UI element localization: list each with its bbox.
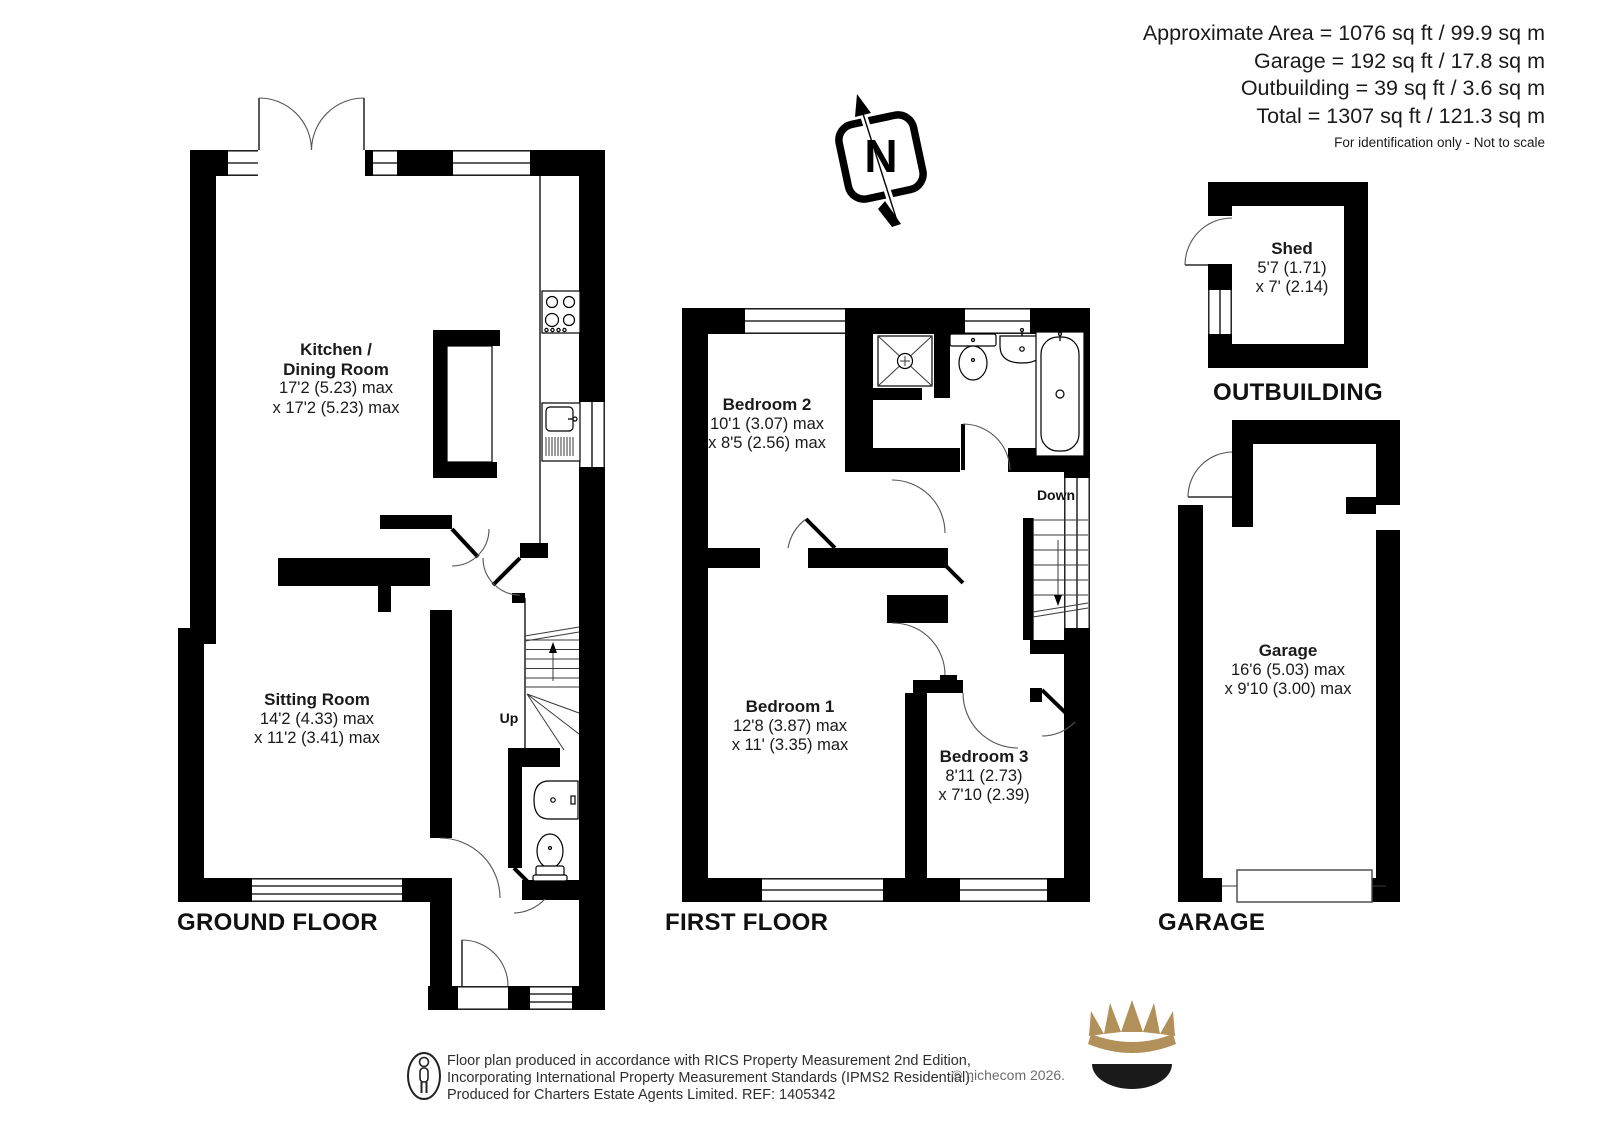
wc-toilet-icon: [533, 834, 567, 881]
bedroom1-label: Bedroom 1 12'8 (3.87) max x 11' (3.35) m…: [732, 697, 849, 756]
approximate-area: Approximate Area = 1076 sq ft / 99.9 sq …: [1143, 20, 1545, 48]
stairs-down-label: Down: [1037, 487, 1075, 503]
compass-north-label: N: [864, 129, 897, 183]
stairs-up-label: Up: [500, 710, 519, 726]
kitchen-window-top-right: [453, 150, 530, 176]
garage-door: [1222, 870, 1386, 902]
ground-floor-title: GROUND FLOOR: [177, 909, 378, 937]
bedroom2-window: [745, 308, 845, 334]
bedroom2-door: [788, 519, 835, 548]
copyright-notice: © nichecom 2026.: [952, 1067, 1065, 1083]
hob-icon: [542, 291, 580, 333]
shed-door: [1185, 218, 1232, 265]
bedroom2-label: Bedroom 2 10'1 (3.07) max x 8'5 (2.56) m…: [708, 395, 826, 454]
footer-disclaimer: Floor plan produced in accordance with R…: [447, 1053, 974, 1104]
kitchen-window-top-left: [228, 150, 258, 176]
front-door: [458, 940, 508, 1010]
bedroom3-door: [963, 693, 1018, 748]
french-doors: [258, 98, 365, 176]
total-area: Total = 1307 sq ft / 121.3 sq m: [1143, 103, 1545, 131]
bathtub-icon: [1036, 332, 1084, 456]
footer-line3: Produced for Charters Estate Agents Limi…: [447, 1087, 974, 1104]
stairs-up: [525, 598, 579, 750]
garage-title: GARAGE: [1158, 909, 1265, 937]
sitting-room-window: [252, 878, 402, 902]
first-floor-title: FIRST FLOOR: [665, 909, 828, 937]
charters-crown-logo: [1088, 1000, 1176, 1089]
hall-door: [483, 558, 520, 595]
compass-arrowhead: [855, 94, 871, 117]
wc-basin-icon: [534, 781, 578, 819]
stairs-up-arrow: [549, 642, 557, 653]
garage-area: Garage = 192 sq ft / 17.8 sq m: [1143, 48, 1545, 76]
kitchen-window-right: [579, 402, 605, 467]
kitchen-sink-icon: [542, 403, 580, 461]
outbuilding-area: Outbuilding = 39 sq ft / 3.6 sq m: [1143, 75, 1545, 103]
entrance-window: [530, 986, 572, 1010]
kitchen-dining-label: Kitchen / Dining Room 17'2 (5.23) max x …: [273, 340, 400, 418]
bathroom-door: [963, 424, 1010, 470]
outbuilding-title: OUTBUILDING: [1213, 379, 1383, 407]
stairs-down-arrow: [1054, 595, 1062, 606]
shed-window: [1208, 290, 1232, 334]
shed-label: Shed 5'7 (1.71) x 7' (2.14): [1256, 239, 1329, 298]
shower-icon: [878, 336, 932, 386]
disclaimer: For identification only - Not to scale: [1143, 135, 1545, 150]
garage-side-door: [1188, 452, 1232, 497]
footer-line2: Incorporating International Property Mea…: [447, 1070, 974, 1087]
sitting-room-label: Sitting Room 14'2 (4.33) max x 11'2 (3.4…: [254, 690, 380, 749]
ground-floor-plan: [178, 98, 605, 1010]
bedroom1-window: [762, 878, 883, 902]
bedroom3-window: [960, 878, 1047, 902]
kitchen-peninsula: [433, 330, 500, 478]
toilet-icon: [950, 334, 996, 380]
bedroom3-label: Bedroom 3 8'11 (2.73) x 7'10 (2.39): [938, 747, 1029, 806]
kitchen-window-top-mid: [373, 150, 397, 176]
footer-line1: Floor plan produced in accordance with R…: [447, 1053, 974, 1070]
person-scale-icon: [408, 1053, 440, 1099]
landing-doors: [892, 480, 963, 675]
garage-label: Garage 16'6 (5.03) max x 9'10 (3.00) max: [1225, 641, 1352, 700]
area-summary: Approximate Area = 1076 sq ft / 99.9 sq …: [1143, 20, 1545, 150]
floorplan-canvas: Approximate Area = 1076 sq ft / 99.9 sq …: [0, 0, 1600, 1131]
floorplan-drawing: [0, 0, 1600, 1131]
